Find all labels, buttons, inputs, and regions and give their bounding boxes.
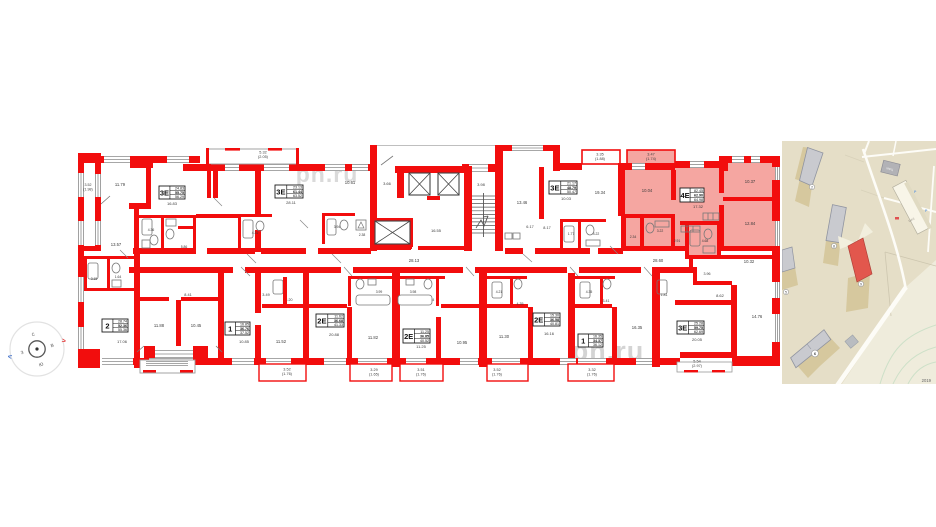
svg-text:16.83: 16.83 <box>167 201 178 206</box>
svg-text:(1.76): (1.76) <box>416 373 427 377</box>
svg-text:4.31: 4.31 <box>252 231 259 235</box>
svg-text:16.16: 16.16 <box>544 331 555 336</box>
svg-text:5: 5 <box>785 290 787 294</box>
svg-text:(2.97): (2.97) <box>692 364 703 368</box>
svg-text:(1.76): (1.76) <box>282 372 293 376</box>
svg-text:3.47: 3.47 <box>647 153 654 157</box>
svg-text:2: 2 <box>105 321 109 330</box>
svg-text:10.61: 10.61 <box>345 180 356 185</box>
svg-text:20.88: 20.88 <box>329 332 340 337</box>
svg-text:2.38: 2.38 <box>359 233 366 237</box>
svg-text:10.37: 10.37 <box>745 179 756 184</box>
svg-text:3.52: 3.52 <box>493 368 500 372</box>
svg-text:10.03: 10.03 <box>561 196 572 201</box>
svg-text:5.54: 5.54 <box>693 360 700 364</box>
svg-text:5.32: 5.32 <box>259 151 266 155</box>
svg-text:3.99: 3.99 <box>376 290 383 294</box>
svg-text:63.52: 63.52 <box>293 194 302 198</box>
svg-text:10.04: 10.04 <box>642 188 653 193</box>
svg-text:3Е: 3Е <box>678 323 687 332</box>
svg-text:64.98: 64.98 <box>694 198 703 202</box>
svg-text:4.35: 4.35 <box>586 290 593 294</box>
svg-text:4.22: 4.22 <box>593 232 600 236</box>
svg-text:(1.76): (1.76) <box>492 373 503 377</box>
svg-text:8.62: 8.62 <box>716 293 725 298</box>
svg-text:(1.88): (1.88) <box>595 157 606 161</box>
svg-text:3Е: 3Е <box>276 187 285 196</box>
svg-text:28.60: 28.60 <box>653 258 664 263</box>
svg-text:3.22: 3.22 <box>657 229 664 233</box>
svg-text:19.34: 19.34 <box>595 190 606 195</box>
svg-text:3.98: 3.98 <box>477 182 486 187</box>
svg-text:62.90: 62.90 <box>694 194 703 198</box>
svg-text:14.76: 14.76 <box>752 314 763 319</box>
svg-text:20.05: 20.05 <box>692 337 703 342</box>
svg-text:3.32: 3.32 <box>588 368 595 372</box>
svg-text:3.41: 3.41 <box>603 299 610 303</box>
svg-text:13.46: 13.46 <box>517 200 528 205</box>
svg-text:13.57: 13.57 <box>111 242 122 247</box>
svg-text:37.52: 37.52 <box>240 331 249 335</box>
svg-text:3Е: 3Е <box>160 188 169 197</box>
svg-text:36.85: 36.85 <box>420 335 429 339</box>
svg-text:3.94: 3.94 <box>334 225 341 229</box>
svg-text:3.66: 3.66 <box>383 181 392 186</box>
svg-text:(2.05): (2.05) <box>258 155 269 159</box>
svg-text:11.52: 11.52 <box>276 339 287 344</box>
svg-text:2Е: 2Е <box>534 315 543 324</box>
svg-text:11.88: 11.88 <box>154 323 165 328</box>
svg-text:82.45: 82.45 <box>694 189 703 193</box>
svg-text:10.32: 10.32 <box>744 259 755 264</box>
svg-text:10.45: 10.45 <box>191 323 202 328</box>
svg-text:1: 1 <box>228 324 232 333</box>
svg-text:(1.65): (1.65) <box>369 373 380 377</box>
svg-text:56.29: 56.29 <box>175 195 184 199</box>
svg-text:4.36: 4.36 <box>148 228 155 232</box>
svg-text:9: 9 <box>860 282 862 286</box>
svg-text:11.79: 11.79 <box>115 182 126 187</box>
svg-text:17.06: 17.06 <box>117 339 128 344</box>
svg-text:3.49: 3.49 <box>262 293 269 297</box>
svg-text:1.77: 1.77 <box>568 232 575 236</box>
svg-text:(1.98): (1.98) <box>83 187 92 191</box>
svg-text:16.35: 16.35 <box>632 325 643 330</box>
svg-text:3.52: 3.52 <box>85 183 92 187</box>
svg-text:40.81: 40.81 <box>550 322 559 326</box>
svg-text:28.11: 28.11 <box>286 200 296 205</box>
svg-text:11.30: 11.30 <box>499 334 510 339</box>
svg-text:2.91: 2.91 <box>674 239 681 243</box>
svg-text:2019: 2019 <box>922 378 932 383</box>
svg-text:41.33: 41.33 <box>334 323 343 327</box>
svg-text:10.85: 10.85 <box>239 339 250 344</box>
svg-text:36.12: 36.12 <box>593 343 602 347</box>
svg-text:2Е: 2Е <box>404 332 413 341</box>
svg-text:(1.74): (1.74) <box>646 157 657 161</box>
svg-text:3.51: 3.51 <box>417 368 424 372</box>
svg-text:8.17: 8.17 <box>543 226 550 230</box>
svg-text:4.21: 4.21 <box>496 290 503 294</box>
svg-text:12.84: 12.84 <box>745 221 756 226</box>
svg-text:11.25: 11.25 <box>416 344 426 349</box>
svg-text:11.25: 11.25 <box>420 330 429 334</box>
svg-text:5.86: 5.86 <box>181 245 188 249</box>
svg-text:4.35: 4.35 <box>517 302 524 306</box>
svg-text:50.47: 50.47 <box>567 190 576 194</box>
svg-text:3.52: 3.52 <box>283 368 290 372</box>
svg-text:2.34: 2.34 <box>630 235 637 239</box>
svg-text:16.55: 16.55 <box>431 228 442 233</box>
svg-text:3.96: 3.96 <box>704 272 711 276</box>
svg-text:1.64: 1.64 <box>115 275 122 279</box>
svg-text:62.69: 62.69 <box>694 330 703 334</box>
svg-text:4.68: 4.68 <box>702 239 709 243</box>
svg-text:6: 6 <box>814 352 816 356</box>
svg-text:3.35: 3.35 <box>596 153 603 157</box>
svg-text:1: 1 <box>581 336 585 345</box>
svg-text:8: 8 <box>833 244 835 248</box>
svg-text:2: 2 <box>811 185 813 189</box>
svg-text:6.17: 6.17 <box>526 225 533 229</box>
svg-text:10.95: 10.95 <box>457 340 468 345</box>
svg-text:8.41: 8.41 <box>184 293 191 297</box>
svg-text:40.52: 40.52 <box>420 339 429 343</box>
svg-text:2Е: 2Е <box>317 316 326 325</box>
svg-text:3.29: 3.29 <box>370 368 377 372</box>
svg-text:55.36: 55.36 <box>118 328 127 332</box>
svg-text:3.15: 3.15 <box>91 277 98 281</box>
svg-text:28.13: 28.13 <box>409 258 420 263</box>
svg-text:4Е: 4Е <box>680 191 689 200</box>
svg-text:3.98: 3.98 <box>410 290 417 294</box>
svg-text:(1.76): (1.76) <box>587 373 598 377</box>
svg-text:3Е: 3Е <box>550 183 559 192</box>
svg-text:17.32: 17.32 <box>693 204 704 209</box>
svg-text:11.82: 11.82 <box>368 335 379 340</box>
